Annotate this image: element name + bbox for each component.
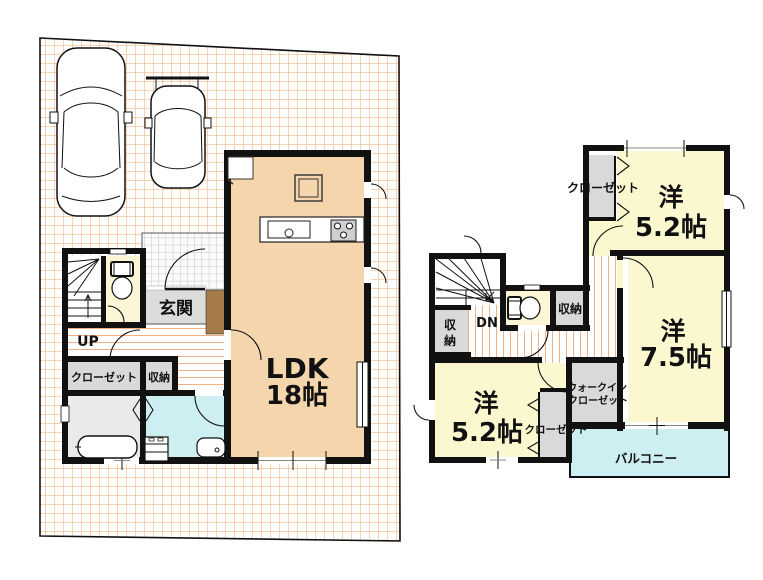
washbasin <box>197 438 225 457</box>
label-up: UP <box>77 334 99 350</box>
bathtub <box>75 436 137 458</box>
floor-plan-canvas: 玄関 UP クローゼット 収納 LDK 18帖 <box>0 0 763 580</box>
label-closet-2f-bottom: クローゼット <box>525 423 588 436</box>
label-wic-2: クローゼット <box>568 394 628 407</box>
label-closet-1f: クローゼット <box>71 370 137 384</box>
label-ldk-size: 18帖 <box>266 381 328 411</box>
label-room-right-size: 7.5帖 <box>640 343 712 373</box>
label-genkan: 玄関 <box>159 298 193 319</box>
label-wic-1: ウォークイン <box>567 382 627 394</box>
ldk-floor <box>231 157 364 457</box>
label-room-bottom-size: 5.2帖 <box>451 418 523 448</box>
toilet-fixture-2f <box>508 297 540 319</box>
label-storage-1f: 収納 <box>148 370 170 384</box>
label-storage-left-1: 収 <box>444 318 457 332</box>
label-storage-left-2: 納 <box>444 333 456 348</box>
label-closet-2f-top: クローゼット <box>567 180 639 195</box>
label-room-top-name: 洋 <box>658 183 683 212</box>
toilet-fixture-1f <box>111 262 133 299</box>
label-room-right-name: 洋 <box>660 317 685 346</box>
genkan-step <box>206 290 226 334</box>
label-dn: DN <box>476 316 498 331</box>
label-room-bottom-name: 洋 <box>473 389 498 418</box>
label-storage-mid: 収納 <box>558 301 582 316</box>
porch-tiles <box>142 233 227 290</box>
kitchen-counter <box>260 217 364 242</box>
floor2-plan: クローゼット 洋 5.2帖 DN 収 納 収納 洋 7.5帖 ウォークイン クロ… <box>414 140 744 477</box>
label-room-top-size: 5.2帖 <box>635 213 707 243</box>
label-balcony: バルコニー <box>615 451 677 466</box>
floor-plan-svg: 玄関 UP クローゼット 収納 LDK 18帖 <box>0 0 763 580</box>
car-small <box>145 78 211 188</box>
car-large <box>50 48 132 216</box>
washing-machine <box>145 437 168 461</box>
